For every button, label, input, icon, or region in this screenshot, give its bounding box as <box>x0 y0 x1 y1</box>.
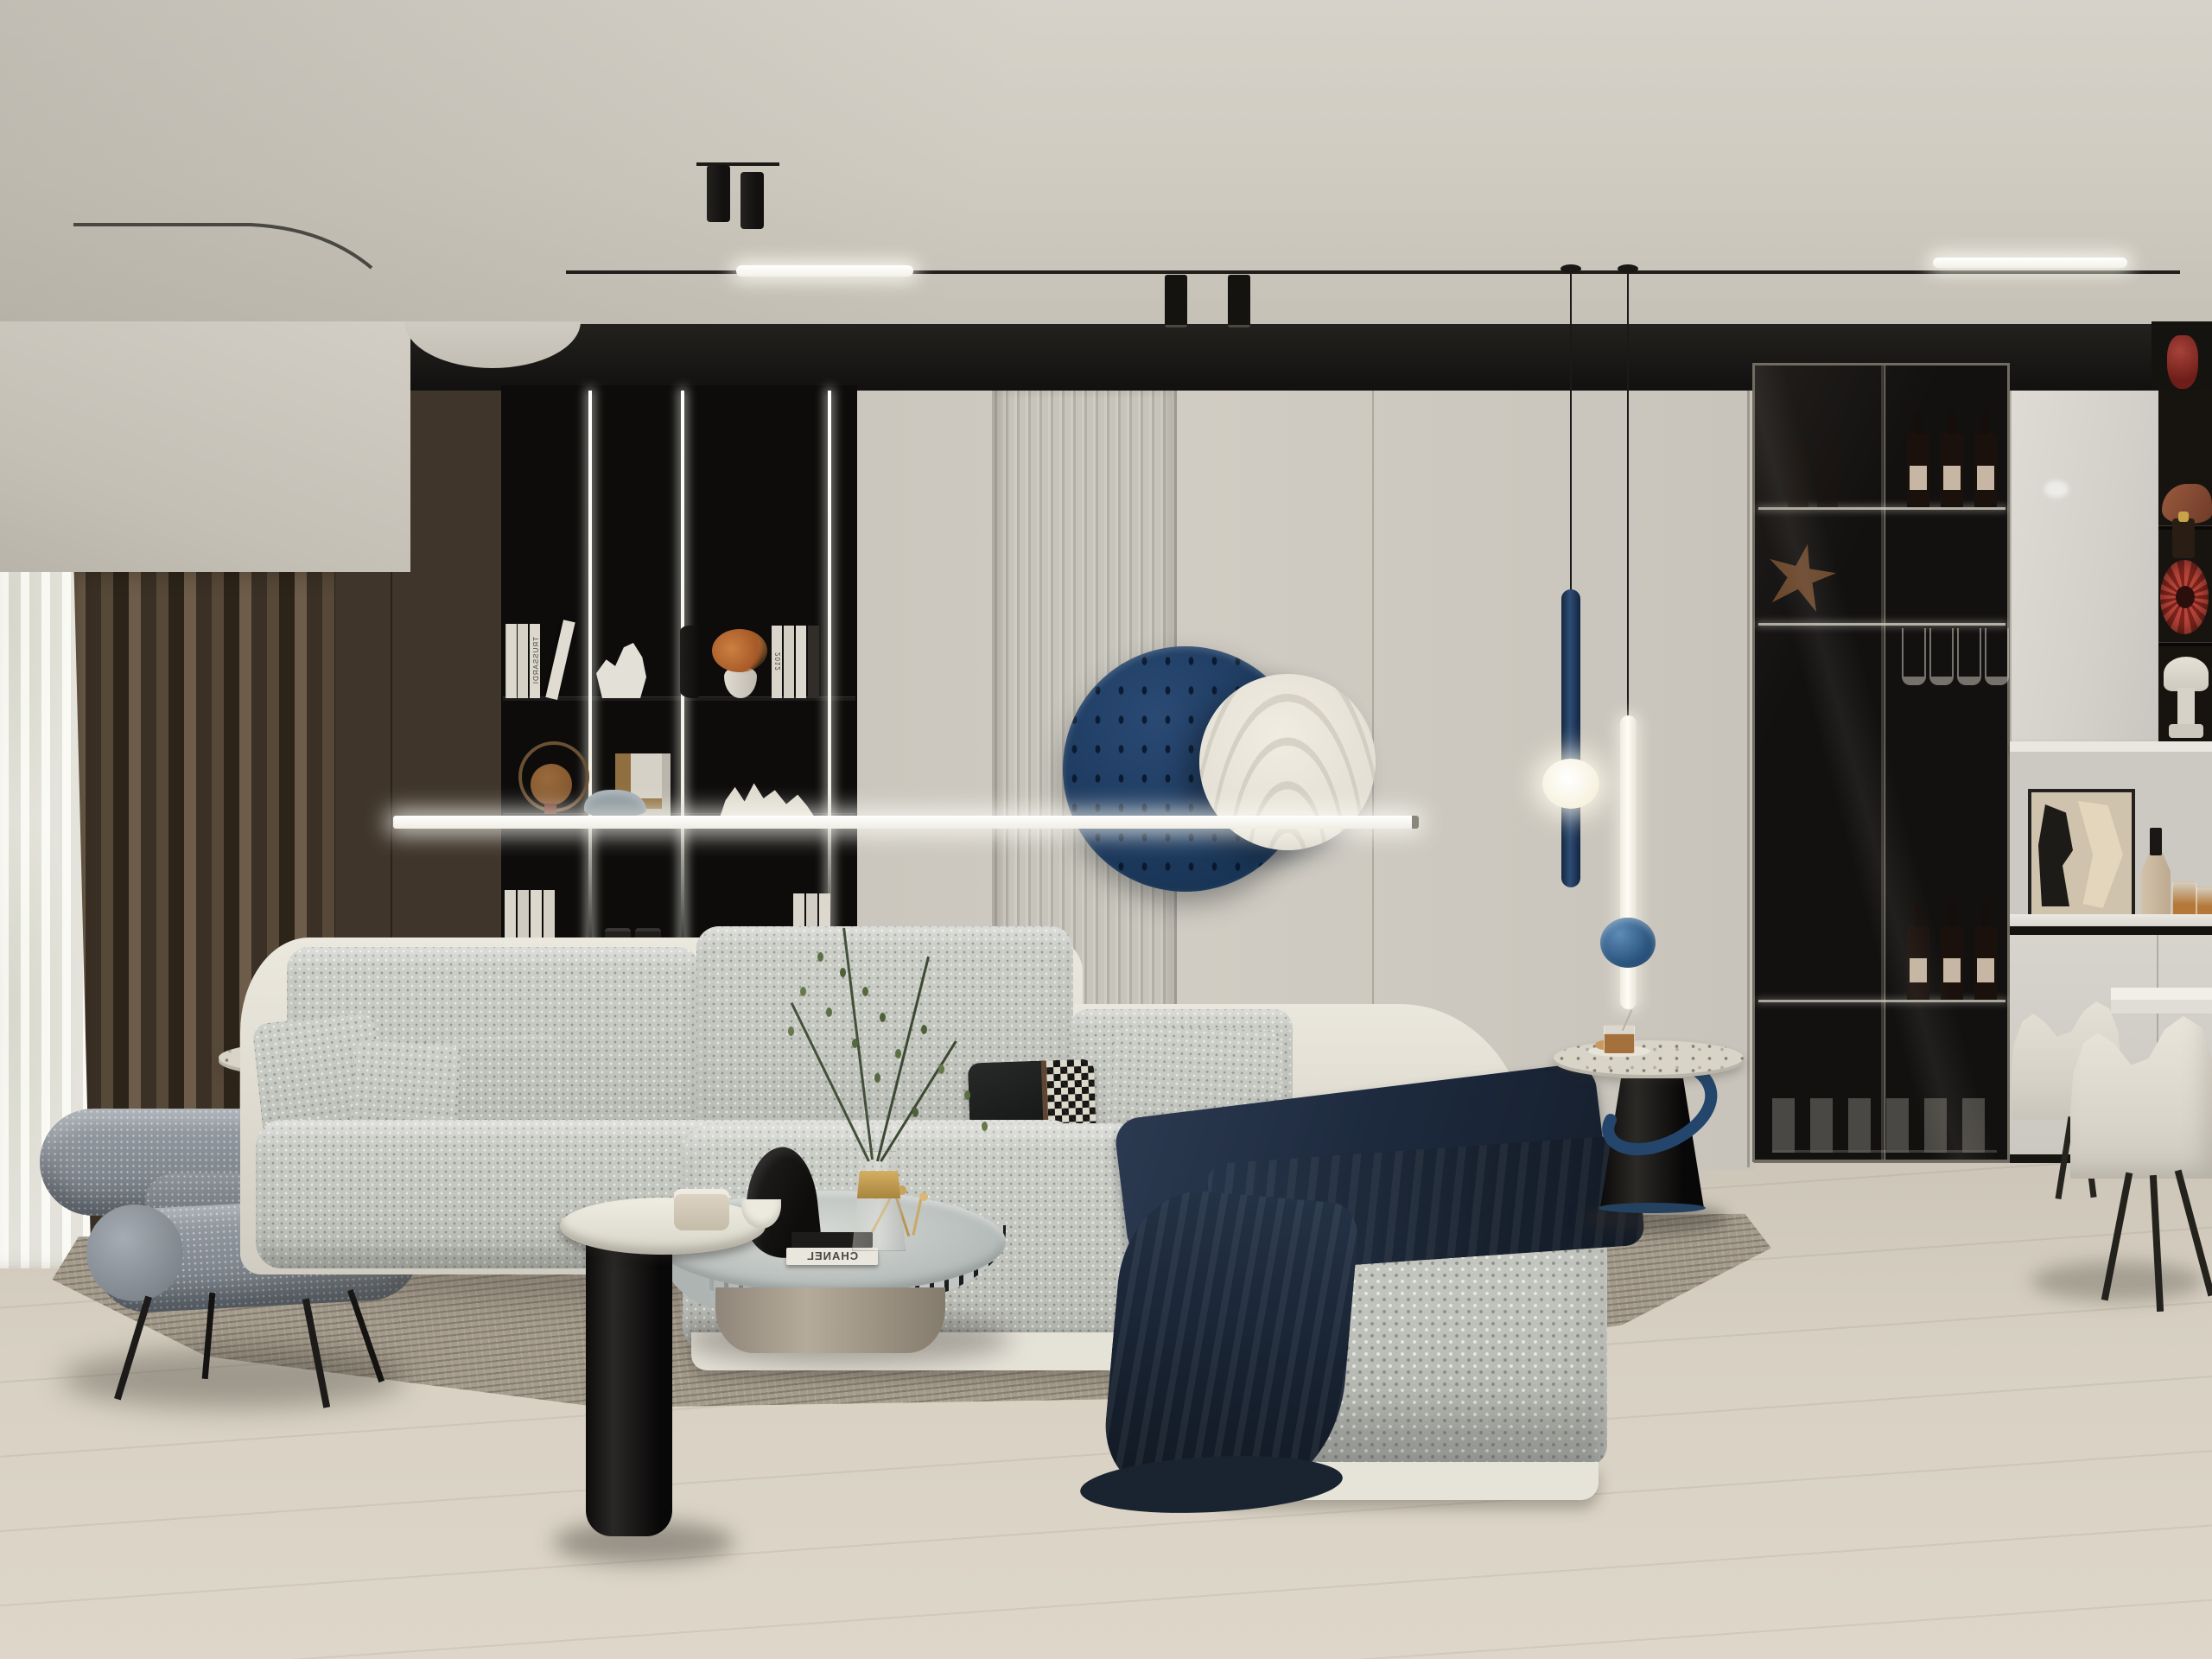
tray-cylinder-box <box>674 1189 729 1230</box>
track-led-bar <box>1933 257 2127 268</box>
mushroom-lamp <box>2164 657 2209 691</box>
shelf-books: TRUSSARDI <box>505 620 571 698</box>
wine-cabinet <box>1752 363 2010 1162</box>
stool-base-ring <box>1599 1203 1706 1213</box>
upper-cabinet-door <box>2010 391 2160 741</box>
coffee-cup <box>1604 1025 1635 1054</box>
coffee-table-base <box>715 1287 945 1353</box>
track-led-bar <box>736 265 913 276</box>
chair-shadow <box>2031 1262 2203 1301</box>
ring-ornament <box>517 741 586 814</box>
display-light-bar <box>393 816 1417 829</box>
counter-gap <box>2010 926 2212 935</box>
ceiling-recess-line <box>73 218 385 273</box>
orange-flowers <box>712 629 767 672</box>
leaf-cluster <box>817 952 823 962</box>
shelf-books: 2012 <box>772 624 823 698</box>
book-spine-chanel: CHANEL <box>806 1248 858 1265</box>
sunburst-center <box>2176 586 2195 608</box>
shelf-led-strip <box>828 391 831 966</box>
bar-shelves <box>2158 391 2212 750</box>
side-table-right-top <box>1554 1040 1744 1075</box>
door-highlight <box>2044 480 2069 498</box>
armchair-shadow <box>60 1348 406 1408</box>
bar-shelf-board <box>2158 642 2212 646</box>
coffee-table-black-cylinder <box>586 1227 672 1536</box>
counter-top <box>2010 914 2212 926</box>
light-bar-endcap <box>1412 816 1419 829</box>
vase-gold-band <box>853 1171 905 1198</box>
dining-table-edge <box>2111 1000 2212 1014</box>
bar-ledge <box>2010 741 2212 752</box>
armchair-base-cap <box>86 1205 183 1301</box>
pendant-blue-glass-orb <box>1600 918 1656 968</box>
mushroom-lamp-stem <box>2177 688 2195 728</box>
ceiling-spotlight <box>741 172 764 229</box>
artwork-black-shape <box>2038 804 2073 906</box>
ceiling-spotlight <box>707 165 730 222</box>
liquor-bottle-cap <box>2150 828 2162 855</box>
dining-table <box>2111 988 2212 1000</box>
ceiling <box>0 0 2212 324</box>
ceiling-drop-left <box>0 321 410 572</box>
black-twist-sculpture <box>680 626 701 698</box>
cylinder-table-tray <box>560 1198 766 1255</box>
pendant-cable <box>1627 270 1629 717</box>
pendant-cable <box>1570 270 1572 591</box>
cognac-cap <box>2178 512 2189 522</box>
shelf-led-strip <box>588 391 592 966</box>
liquor-bottle <box>2141 852 2171 918</box>
artwork-beige-shape <box>2073 801 2123 908</box>
pendant-light-navy <box>1561 589 1580 887</box>
living-room-render: TRUSSARDI 2012 <box>0 0 2212 1659</box>
book-spine-label: TRUSSARDI <box>532 637 540 684</box>
mushroom-lamp-base <box>2169 724 2203 738</box>
ceiling-spotlight <box>1228 275 1250 327</box>
red-vase <box>2167 335 2198 389</box>
ceiling-spotlight <box>1165 275 1187 327</box>
cognac-bottle <box>2172 518 2195 558</box>
glass-reflection <box>1755 365 2007 1160</box>
pendant-navy-glow-orb <box>1542 759 1599 809</box>
artwork-frame <box>2028 789 2135 918</box>
book-spine-label: 2012 <box>774 652 782 671</box>
